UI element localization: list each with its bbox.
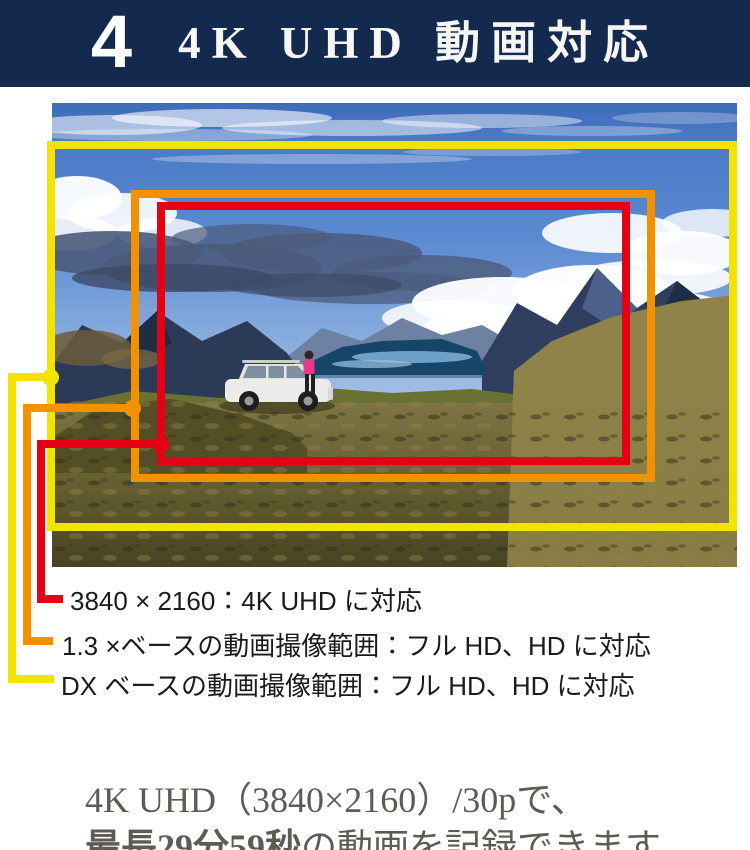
legend-item-4k: 3840 × 2160：4K UHD に対応 — [70, 586, 422, 617]
connector-dx-dot — [42, 369, 59, 386]
caption-line2-rest: の動画を記録できます。 — [301, 827, 693, 850]
caption-line1: 4K UHD（3840×2160）/30pで、 — [85, 780, 587, 820]
connector-13x-stub — [23, 637, 53, 645]
connector-13x-dot — [124, 400, 141, 417]
caption-line2-bold: 最長29分59秒 — [85, 827, 301, 850]
caption: 4K UHD（3840×2160）/30pで、 最長29分59秒の動画を記録でき… — [85, 777, 725, 850]
connector-13x-horizontal — [23, 404, 135, 412]
section-title: 4K UHD 動画対応 — [178, 21, 659, 66]
connector-dx-vertical — [8, 373, 16, 683]
crop-frame-4k — [157, 202, 630, 465]
connector-4k-vertical — [37, 440, 45, 603]
section-number: 4 — [91, 5, 132, 79]
section-banner: 4 4K UHD 動画対応 — [0, 0, 750, 87]
connector-4k-dot — [152, 436, 169, 453]
legend-item-13x: 1.3 ×ベースの動画撮像範囲：フル HD、HD に対応 — [62, 631, 651, 662]
connector-13x-vertical — [23, 404, 31, 645]
connector-4k-horizontal — [37, 440, 163, 448]
connector-4k-stub — [37, 595, 63, 603]
connector-dx-stub — [8, 675, 54, 683]
page: 4 4K UHD 動画対応 — [0, 0, 750, 850]
legend-item-dx: DX ベースの動画撮像範囲：フル HD、HD に対応 — [61, 671, 635, 702]
